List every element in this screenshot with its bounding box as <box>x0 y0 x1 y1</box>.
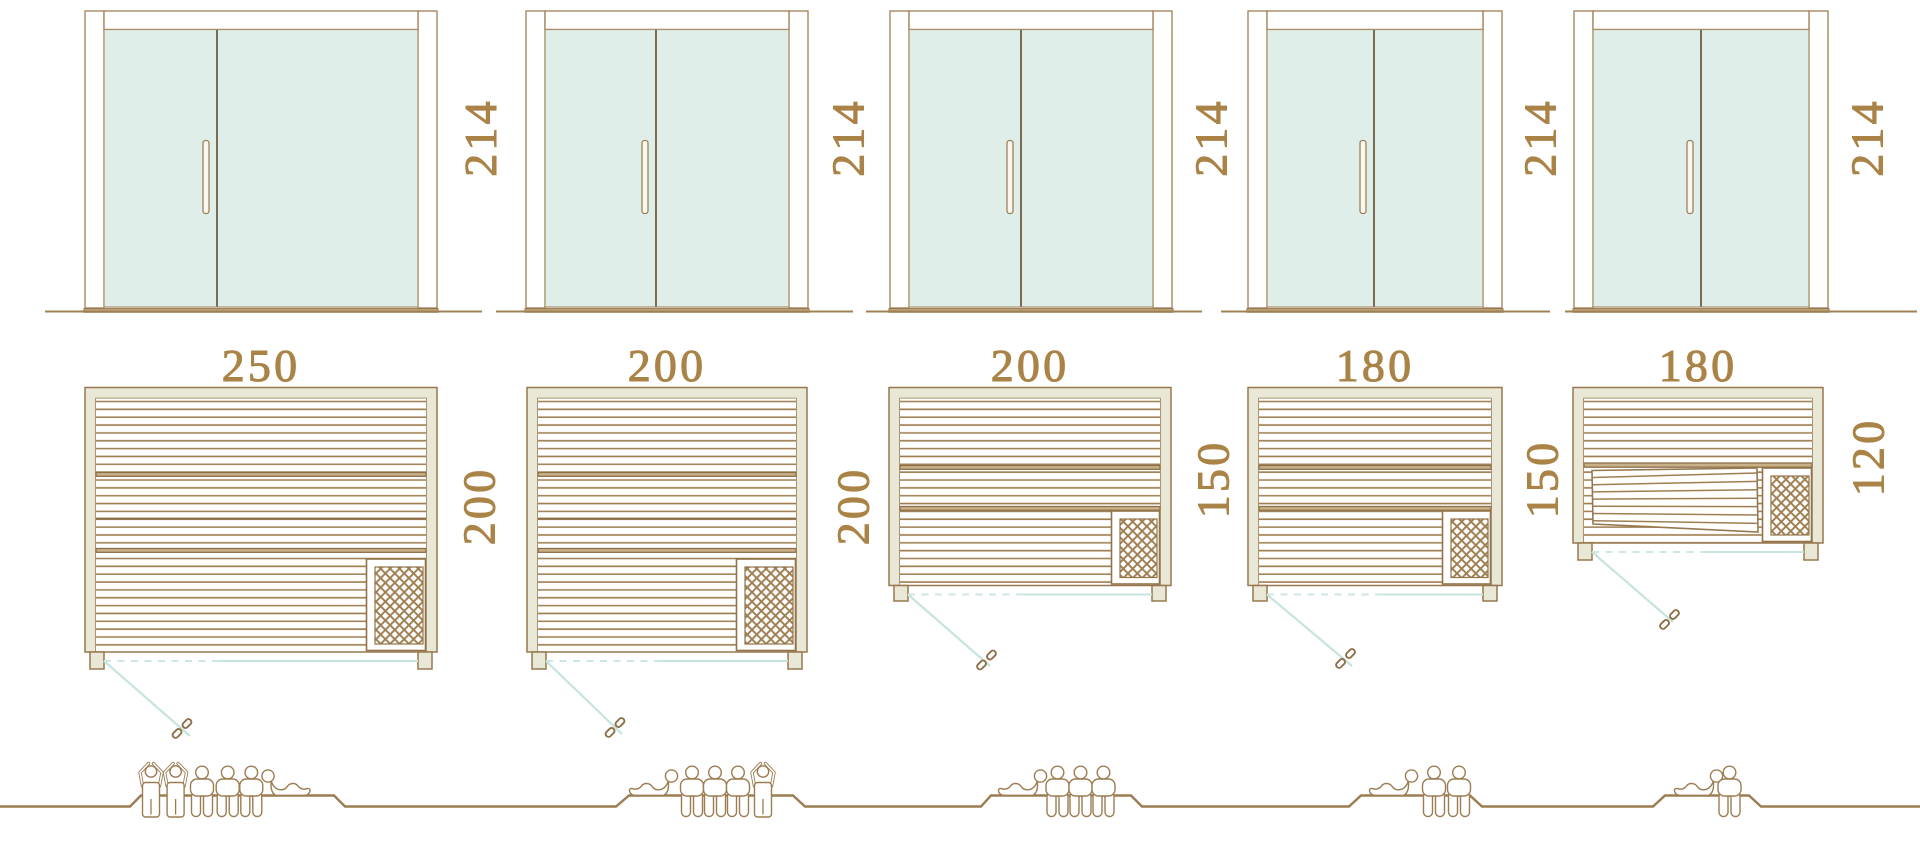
svg-text:150: 150 <box>1188 440 1239 519</box>
svg-text:214: 214 <box>823 98 874 177</box>
svg-text:120: 120 <box>1843 418 1894 497</box>
svg-text:214: 214 <box>1186 98 1237 177</box>
svg-text:150: 150 <box>1517 440 1568 519</box>
svg-text:180: 180 <box>1336 340 1415 391</box>
svg-text:180: 180 <box>1659 340 1738 391</box>
svg-text:214: 214 <box>455 98 506 177</box>
svg-text:250: 250 <box>222 340 301 391</box>
svg-text:200: 200 <box>991 340 1070 391</box>
svg-text:200: 200 <box>628 340 707 391</box>
svg-text:214: 214 <box>1515 98 1566 177</box>
svg-text:200: 200 <box>454 467 505 546</box>
svg-text:214: 214 <box>1842 98 1893 177</box>
svg-text:200: 200 <box>828 467 879 546</box>
